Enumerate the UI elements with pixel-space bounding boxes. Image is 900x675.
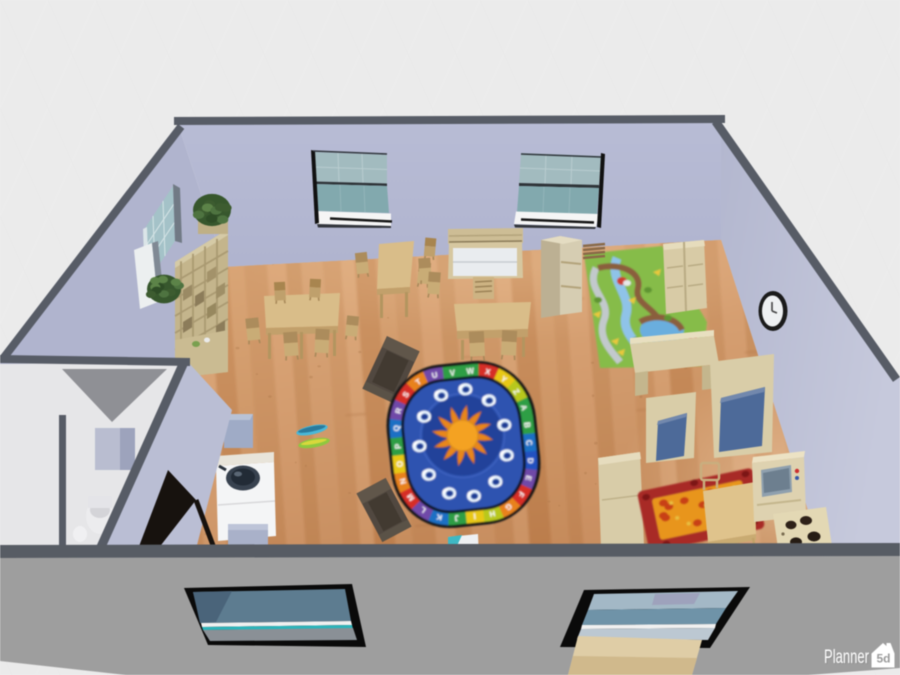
- svg-text:D: D: [526, 458, 535, 464]
- svg-text:W: W: [466, 367, 475, 377]
- svg-text:Planner: Planner: [824, 647, 869, 668]
- svg-text:O: O: [395, 460, 405, 467]
- svg-text:Q: Q: [392, 425, 401, 432]
- svg-text:J: J: [454, 513, 459, 522]
- svg-text:B: B: [522, 422, 532, 429]
- svg-text:C: C: [524, 439, 534, 446]
- svg-text:5d: 5d: [876, 652, 890, 666]
